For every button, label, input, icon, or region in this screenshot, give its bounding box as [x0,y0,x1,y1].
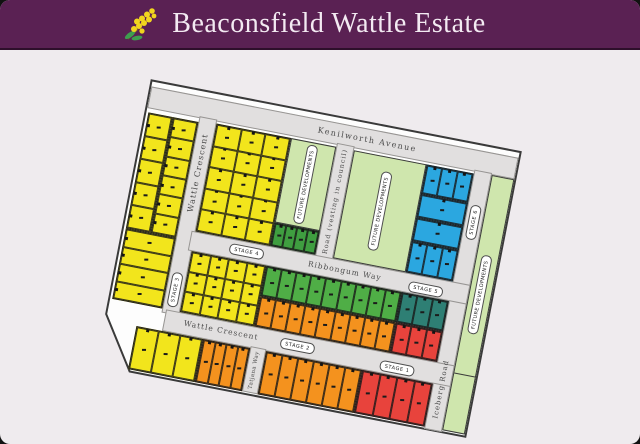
page-title: Beaconsfield Wattle Estate [172,8,485,40]
lot [127,205,154,232]
estate-map-page: Beaconsfield Wattle Estate [0,0,640,444]
header-banner: Beaconsfield Wattle Estate [0,0,640,50]
site-plan-map: Kenilworth Avenue Wattle Crescent Road (… [94,78,523,440]
lot [245,219,273,245]
header-content: Beaconsfield Wattle Estate [122,5,485,43]
wattle-flower-logo [122,5,158,43]
lot-block-south-orange-west [195,339,251,391]
parcel-divider [454,372,475,377]
